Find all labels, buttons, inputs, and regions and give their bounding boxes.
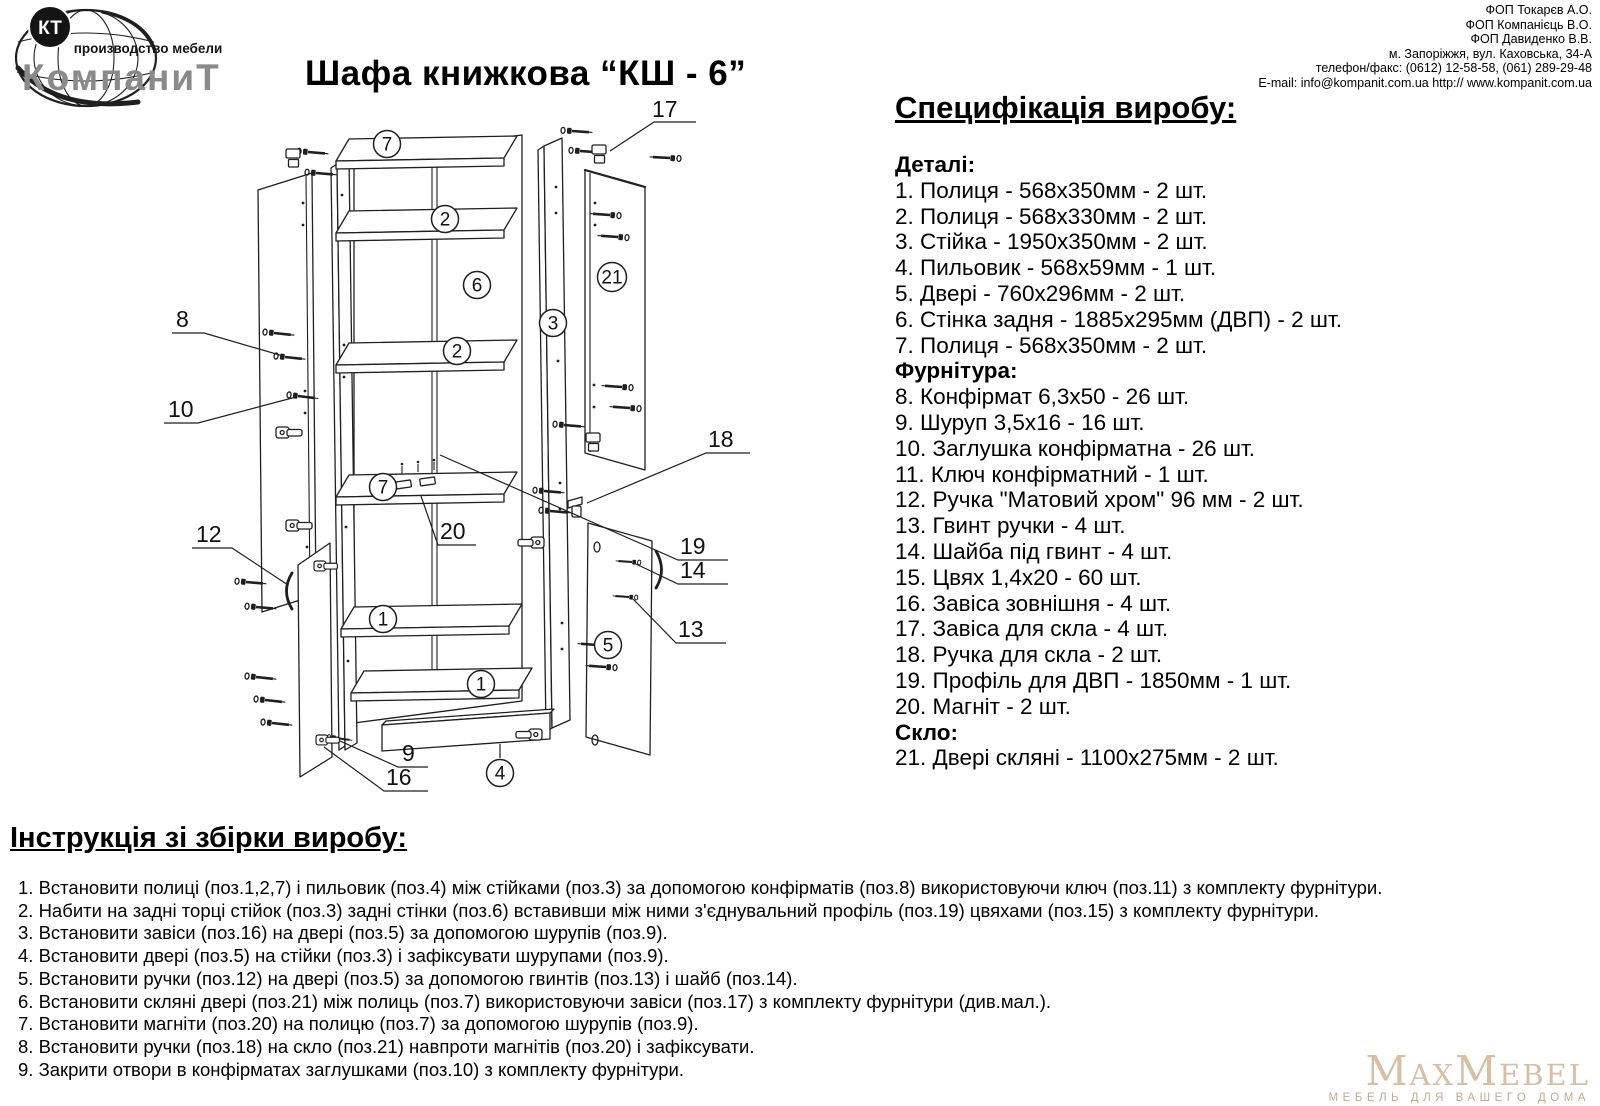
spec-item: 10. Заглушка конфірматна - 26 шт. [895, 436, 1555, 462]
spec-item: 11. Ключ конфірматний - 1 шт. [895, 462, 1555, 488]
kt-monogram-icon: КТ [29, 6, 71, 48]
spec-item: 18. Ручка для скла - 2 шт. [895, 642, 1555, 668]
contact-line: ФОП Токарєв А.О. [1258, 3, 1592, 18]
callout-1a: 1 [378, 610, 389, 631]
maxmebel-tagline: МЕБЕЛЬ ДЛЯ ВАШЕГО ДОМА [1329, 1092, 1590, 1104]
callout-8: 8 [176, 306, 189, 332]
spec-section-title: Фурнітура: [895, 358, 1555, 384]
instruction-step: 5. Встановити ручки (поз.12) на двері (п… [10, 968, 1595, 991]
specification-heading: Специфікація виробу: [895, 90, 1555, 126]
spec-item: 8. Конфірмат 6,3х50 - 26 шт. [895, 384, 1555, 410]
maxmebel-brand: MaxMebel [1329, 1051, 1590, 1091]
right-door-handle-icon [656, 551, 662, 588]
spec-item: 14. Шайба під гвинт - 4 шт. [895, 539, 1555, 565]
callout-4: 4 [495, 764, 506, 785]
page-title: Шафа книжкова “КШ - 6” [305, 54, 746, 94]
callout-14: 14 [680, 557, 706, 583]
assembly-diagram: 17 8 10 18 12 20 19 14 13 9 16 7 2 6 2 3… [140, 95, 880, 805]
spec-item: 21. Двері скляні - 1100х275мм - 2 шт. [895, 745, 1555, 771]
callout-5: 5 [603, 636, 614, 657]
spec-glass-list: 21. Двері скляні - 1100х275мм - 2 шт. [895, 745, 1555, 771]
spec-item: 4. Пильовик - 568х59мм - 1 шт. [895, 255, 1555, 281]
spec-item: 5. Двері - 760х296мм - 2 шт. [895, 281, 1555, 307]
specification-section: Специфікація виробу: Деталі: 1. Полиця -… [895, 90, 1555, 771]
callout-21: 21 [601, 268, 622, 289]
spec-section-hardware: Фурнітура: 8. Конфірмат 6,3х50 - 26 шт.9… [895, 358, 1555, 719]
logo-brand: КомпаниТ [22, 57, 221, 98]
shelf-bottom [351, 668, 532, 701]
spec-item: 6. Стінка задня - 1885х295мм (ДВП) - 2 ш… [895, 307, 1555, 333]
callout-12: 12 [196, 521, 222, 547]
callout-1b: 1 [476, 675, 487, 696]
instructions-heading: Інструкція зі збірки виробу: [10, 822, 1595, 855]
spec-item: 3. Стійка - 1950х350мм - 2 шт. [895, 229, 1555, 255]
contact-line: E-mail: info@kompanit.com.ua http:// www… [1258, 76, 1592, 91]
callout-17: 17 [652, 96, 678, 122]
instruction-step: 1. Встановити полиці (поз.1,2,7) і пильо… [10, 877, 1595, 900]
callout-19: 19 [680, 533, 706, 559]
spec-item: 15. Цвях 1,4х20 - 60 шт. [895, 565, 1555, 591]
assembly-instructions-section: Інструкція зі збірки виробу: 1. Встанови… [10, 822, 1595, 1081]
left-glass-door [258, 173, 316, 612]
instruction-step: 7. Встановити магніти (поз.20) на полицю… [10, 1013, 1595, 1036]
instruction-step: 3. Встановити завіси (поз.16) на двері (… [10, 922, 1595, 945]
callout-2a: 2 [440, 210, 451, 231]
contact-line: телефон/факс: (0612) 12-58-58, (061) 289… [1258, 61, 1592, 76]
kompanit-logo: КТ производство мебели КомпаниТ [8, 2, 260, 108]
spec-item: 2. Полиця - 568х330мм - 2 шт. [895, 204, 1555, 230]
instruction-sheet: КТ производство мебели КомпаниТ Шафа кни… [0, 0, 1600, 1106]
contact-line: м. Запоріжжя, вул. Каховська, 34-А [1258, 47, 1592, 62]
contact-block: ФОП Токарєв А.О.ФОП Компанієць В.О.ФОП Д… [1258, 3, 1592, 91]
shelf-top [336, 136, 517, 169]
callout-13: 13 [678, 616, 704, 642]
shelf-middle [336, 340, 517, 373]
spec-item: 20. Магніт - 2 шт. [895, 694, 1555, 720]
callout-6: 6 [472, 276, 483, 297]
spec-item: 13. Гвинт ручки - 4 шт. [895, 513, 1555, 539]
callout-10: 10 [168, 396, 194, 422]
spec-item: 1. Полиця - 568х350мм - 2 шт. [895, 178, 1555, 204]
right-stanchion-panel [538, 138, 570, 732]
spec-section-glass: Скло: 21. Двері скляні - 1100х275мм - 2 … [895, 720, 1555, 772]
callout-16: 16 [386, 764, 412, 790]
spec-item: 19. Профіль для ДВП - 1850мм - 1 шт. [895, 668, 1555, 694]
contact-line: ФОП Компанієць В.О. [1258, 18, 1592, 33]
callout-9: 9 [402, 740, 415, 766]
shelf-upper [336, 208, 517, 241]
spec-section-title: Деталі: [895, 152, 1555, 178]
left-stanchion-panel [331, 157, 357, 750]
shelf-lower [341, 604, 522, 637]
spec-details-list: 1. Полиця - 568х350мм - 2 шт.2. Полиця -… [895, 178, 1555, 359]
callout-18: 18 [708, 426, 734, 452]
callout-20: 20 [440, 518, 466, 544]
callout-2b: 2 [452, 342, 463, 363]
kt-monogram-text: КТ [38, 18, 62, 39]
spec-item: 9. Шуруп 3,5х16 - 16 шт. [895, 410, 1555, 436]
spec-item: 7. Полиця - 568х350мм - 2 шт. [895, 333, 1555, 359]
instruction-step: 4. Встановити двері (поз.5) на стійки (п… [10, 945, 1595, 968]
contact-line: ФОП Давиденко В.В. [1258, 32, 1592, 47]
callout-3: 3 [548, 314, 559, 335]
callout-7a: 7 [382, 135, 393, 156]
spec-item: 16. Завіса зовнішня - 4 шт. [895, 591, 1555, 617]
spec-item: 12. Ручка "Матовий хром" 96 мм - 2 шт. [895, 487, 1555, 513]
spec-section-title: Скло: [895, 720, 1555, 746]
callout-7b: 7 [378, 478, 389, 499]
maxmebel-logo: MaxMebel МЕБЕЛЬ ДЛЯ ВАШЕГО ДОМА [1329, 1051, 1590, 1104]
spec-hardware-list: 8. Конфірмат 6,3х50 - 26 шт.9. Шуруп 3,5… [895, 384, 1555, 719]
spec-item: 17. Завіса для скла - 4 шт. [895, 616, 1555, 642]
spec-section-details: Деталі: 1. Полиця - 568х350мм - 2 шт.2. … [895, 152, 1555, 358]
instruction-step: 2. Набити на задні торці стійок (поз.3) … [10, 900, 1595, 923]
instruction-step: 6. Встановити скляні двері (поз.21) між … [10, 991, 1595, 1014]
logo-tagline: производство мебели [74, 41, 223, 56]
